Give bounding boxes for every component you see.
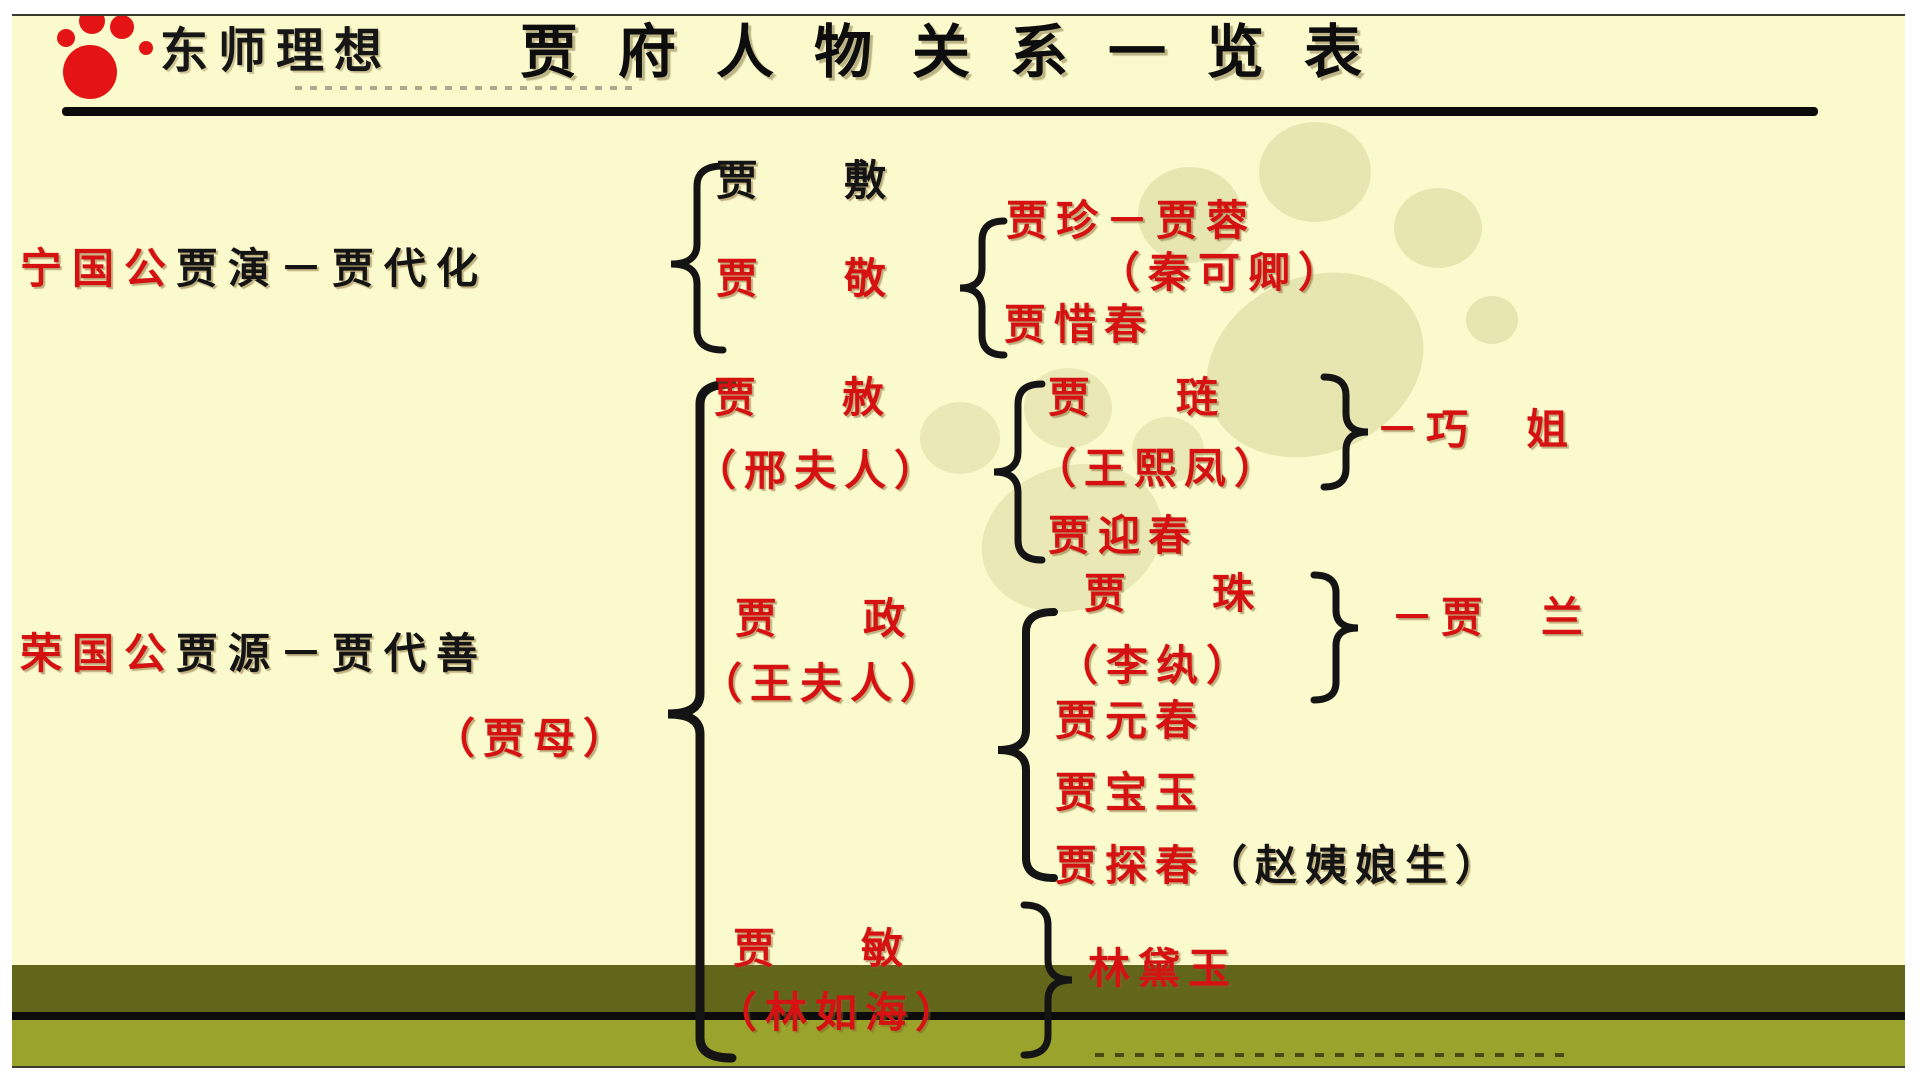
person-jia-yuanchun: 贾元春: [1055, 700, 1205, 745]
person-jia-tanchun: 贾探春: [1055, 845, 1205, 890]
person-jia-baoyu: 贾宝玉: [1055, 772, 1205, 817]
ningguo-title-text: 宁国公: [20, 248, 176, 293]
person-jia-xichun: 贾惜春: [1004, 304, 1154, 349]
rongguo-names-text: 贾源－贾代善: [176, 633, 488, 678]
brace: [1324, 377, 1368, 487]
person-jia-zheng: 贾 政: [735, 598, 927, 643]
logo-smudge-text: [295, 86, 635, 90]
person-jia-fu: 贾 敷: [716, 160, 908, 205]
brace: [1024, 905, 1072, 1055]
person-jia-min: 贾 敏: [733, 928, 925, 973]
slide: 东师理想 贾府人物关系一览表 宁国公贾演－贾代化 贾 敷 贾 敬 贾珍－贾蓉 （…: [0, 0, 1920, 1080]
slide-top-edge: [12, 14, 1905, 16]
brace: [998, 612, 1054, 878]
title-underline: [62, 107, 1818, 116]
person-qiao-jie: －巧 姐: [1376, 409, 1576, 454]
person-jia-jing: 贾 敬: [716, 258, 908, 303]
person-wang-furen: （王夫人）: [700, 663, 950, 708]
bottom-smudge-text: [1095, 1053, 1575, 1057]
person-jia-mu: （贾母）: [433, 718, 633, 763]
person-wang-xifeng: （王熙凤）: [1034, 448, 1284, 493]
label-ningguo-founder: 宁国公贾演－贾代化: [20, 248, 488, 293]
brace: [960, 221, 1004, 355]
person-jia-zhu: 贾 珠: [1084, 573, 1276, 618]
logo-text: 东师理想: [160, 26, 392, 78]
person-jia-zhen-rong: 贾珍－贾蓉: [1006, 200, 1256, 245]
rongguo-title-text: 荣国公: [20, 633, 176, 678]
brace: [1314, 575, 1358, 700]
frame-left: [0, 0, 12, 1080]
frame-bottom: [0, 1068, 1920, 1080]
note-zhao-yiniang: （赵姨娘生）: [1205, 845, 1505, 890]
frame-top: [0, 0, 1920, 14]
person-jia-yingchun: 贾迎春: [1048, 515, 1198, 560]
person-jia-lian: 贾 琏: [1048, 377, 1240, 422]
slide-bottom-edge: [12, 1066, 1905, 1068]
person-jia-she: 贾 赦: [714, 377, 906, 422]
ningguo-names-text: 贾演－贾代化: [176, 248, 488, 293]
frame-right: [1905, 0, 1920, 1080]
person-qin-keqing: （秦可卿）: [1098, 252, 1348, 297]
brace-layer: [0, 0, 1920, 1080]
page-title: 贾府人物关系一览表: [520, 22, 1402, 85]
person-lin-daiyu: 林黛玉: [1088, 948, 1238, 993]
label-rongguo-founder: 荣国公贾源－贾代善: [20, 633, 488, 678]
person-lin-ruhai: （林如海）: [715, 992, 965, 1037]
person-li-wan: （李纨）: [1056, 645, 1256, 690]
person-xing-furen: （邢夫人）: [694, 450, 944, 495]
person-jia-lan: －贾 兰: [1391, 597, 1591, 642]
logo-paw-icon: [50, 6, 170, 106]
person-jia-tanchun-row: 贾探春（赵姨娘生）: [1055, 845, 1505, 890]
